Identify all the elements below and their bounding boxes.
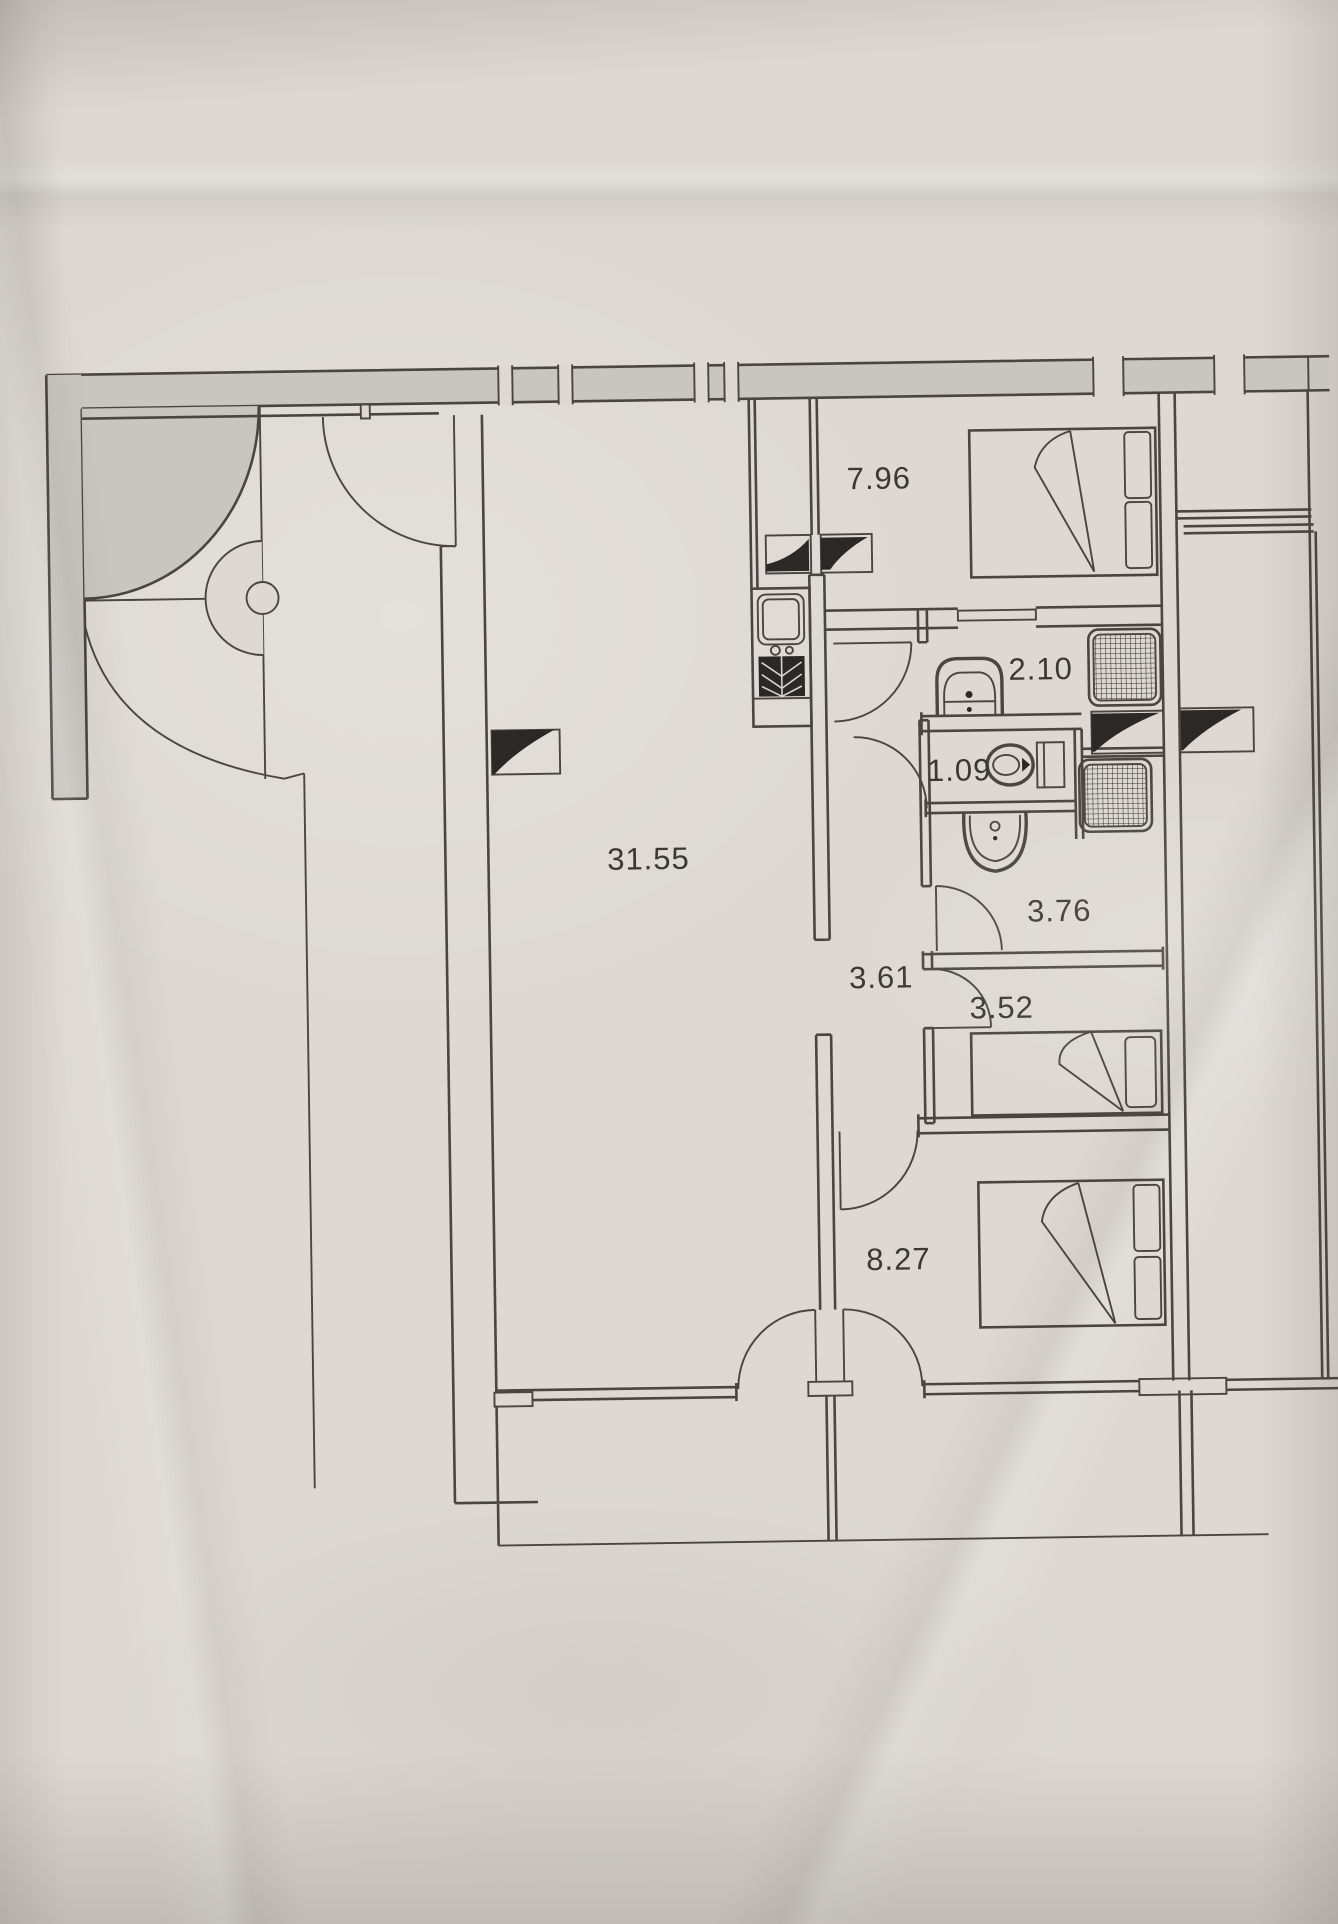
pillow <box>1124 432 1151 498</box>
door-swing-arc <box>840 1130 919 1209</box>
entrance-door <box>323 415 456 548</box>
bedroom-middle <box>916 966 1169 1138</box>
exterior-wall-left <box>46 375 87 799</box>
sliding-door <box>958 610 1036 621</box>
plan-lower-edge <box>499 1534 1269 1545</box>
room-label-wc: 1.09 <box>927 752 992 788</box>
toilet <box>937 658 1003 716</box>
washbasin <box>964 813 1027 872</box>
pillow <box>1125 1037 1156 1107</box>
room-labels: 31.55 7.96 2.10 1.09 3.76 3.61 3.52 8.27 <box>601 458 1097 1281</box>
exterior-wall-top <box>46 353 1329 412</box>
door-swing-arc <box>843 1308 922 1387</box>
bathroom-bottom <box>920 759 1163 974</box>
door-leaf <box>833 642 911 643</box>
double-bed <box>978 1180 1165 1328</box>
shower-tray <box>1079 759 1152 832</box>
toilet <box>987 742 1065 788</box>
single-bed <box>971 1031 1162 1116</box>
room-label-bedroom-top: 7.96 <box>846 460 911 496</box>
east-walls <box>1159 390 1329 1380</box>
floor-plan-photo: 31.55 7.96 2.10 1.09 3.76 3.61 3.52 8.27 <box>0 0 1338 1924</box>
pillow <box>1125 502 1152 568</box>
room-label-bedroom-middle: 3.52 <box>969 990 1034 1026</box>
door-swing-arc <box>854 736 927 809</box>
floor-plan-drawing: 31.55 7.96 2.10 1.09 3.76 3.61 3.52 8.27 <box>0 0 1338 1924</box>
room-label-hallway: 3.61 <box>849 959 914 995</box>
room-label-bathroom-top: 2.10 <box>1008 651 1073 687</box>
door-swing-arc <box>833 642 912 721</box>
bed-fold <box>1041 1182 1115 1324</box>
vent-shaft-wedge <box>766 534 873 574</box>
shower-tray <box>1088 629 1161 706</box>
door-swing-arc <box>323 415 456 548</box>
door-leaf <box>933 1027 991 1028</box>
double-bed <box>969 428 1157 578</box>
curved-screen-wall <box>85 622 315 1491</box>
room-label-bedroom-bottom: 8.27 <box>866 1241 931 1277</box>
vent-shaft-wedge <box>492 730 561 775</box>
door-swing-arc <box>737 1310 816 1389</box>
door-leaf <box>439 415 456 546</box>
double-doors-bottom <box>737 1308 922 1397</box>
pillow <box>1133 1185 1160 1251</box>
door-leaf <box>840 1131 841 1209</box>
room-label-living: 31.55 <box>607 841 690 877</box>
bedroom-top <box>822 428 1162 630</box>
bedroom-bottom <box>840 1127 1166 1330</box>
door-leaf <box>815 1309 844 1387</box>
bed-fold <box>1059 1031 1123 1112</box>
vent-shaft-wedge <box>1091 707 1254 753</box>
bed-fold <box>1034 431 1094 573</box>
room-label-bathroom-bottom: 3.76 <box>1027 893 1092 929</box>
door-leaf <box>936 886 937 951</box>
curved-lobby <box>82 403 455 1491</box>
kitchen-sink <box>751 588 811 727</box>
pillow <box>1134 1257 1161 1319</box>
door-swing-arc <box>936 885 1002 951</box>
